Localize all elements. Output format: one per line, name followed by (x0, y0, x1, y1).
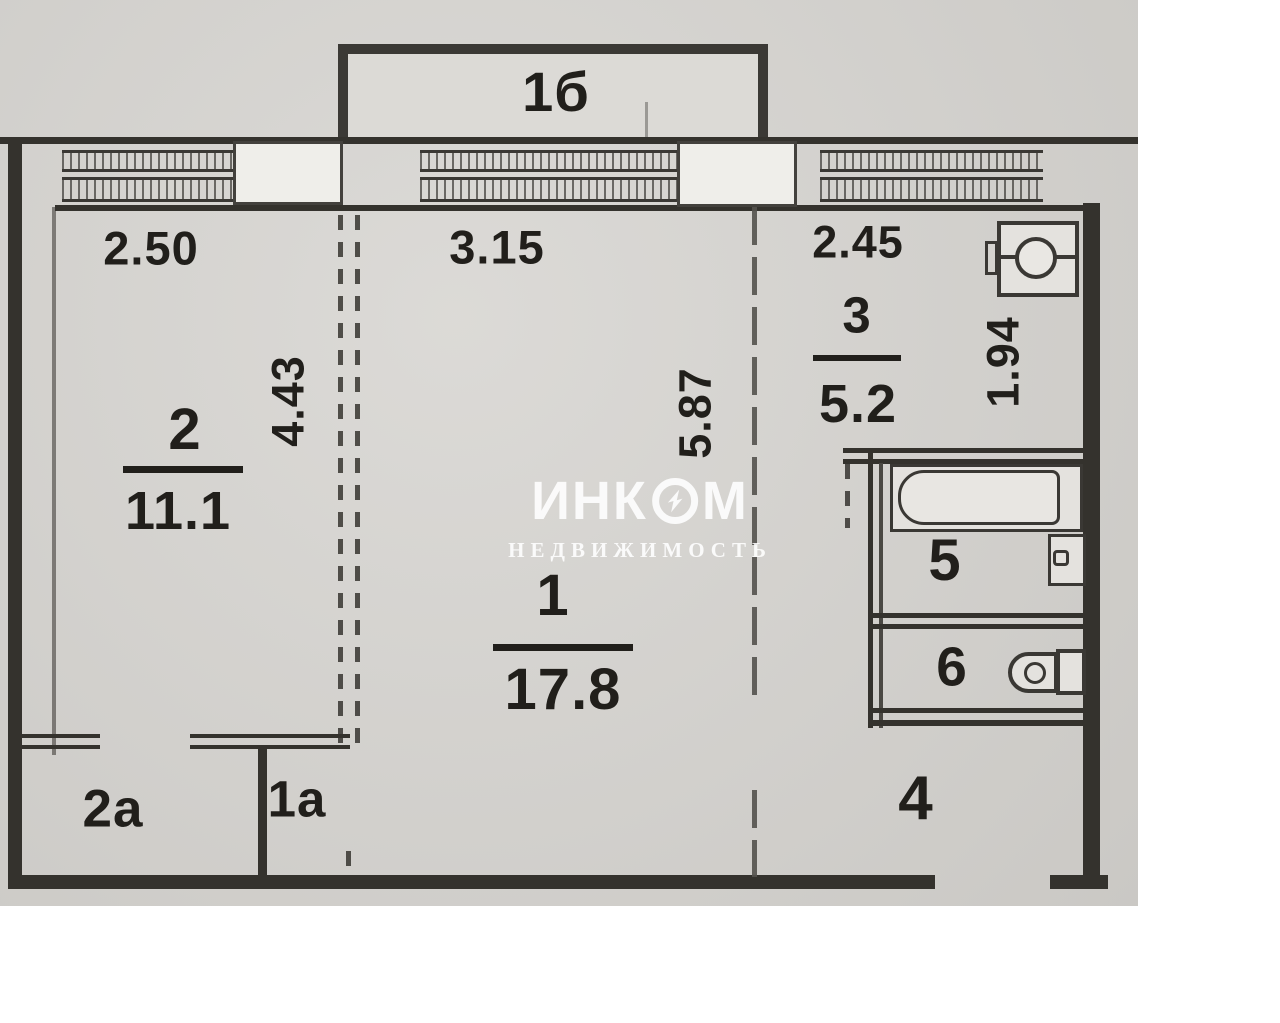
closet-wall-right-line1 (190, 734, 350, 738)
bath-wc-wall-line1 (868, 613, 1085, 618)
kitchen-door-leaf (845, 464, 850, 528)
north-wall-inner-line (55, 205, 1085, 211)
bedroom-area: 11.1 (125, 484, 231, 538)
lightning-bolt-in-circle-icon (652, 478, 698, 524)
hall-number: 4 (898, 768, 933, 830)
living-fraction-bar (493, 644, 633, 651)
closet-1a-wall-stub (346, 851, 351, 877)
watermark-brand-left: ИНК (531, 470, 648, 532)
bath-number: 5 (928, 532, 961, 590)
sink-tap-icon (985, 241, 998, 275)
kitchen-number: 3 (842, 290, 871, 341)
bedroom-window-icon (62, 148, 233, 204)
floor-plan-scan: 1б (0, 0, 1280, 1023)
wall-pier-left (233, 141, 343, 205)
bath-left-wall-line2 (879, 463, 883, 728)
balcony-glazing-divider (645, 102, 648, 138)
kitchen-window-icon (820, 148, 1043, 204)
balcony-door-window-icon (420, 148, 677, 204)
sink-bowl-icon (1015, 237, 1057, 279)
wc-bottom-wall-line1 (868, 708, 1085, 713)
bath-left-wall-line1 (868, 448, 873, 728)
kitchen-bath-wall-line1 (843, 448, 1085, 453)
watermark-subtitle: НЕДВИЖИМОСТЬ (508, 538, 772, 563)
south-wall-left-segment (8, 875, 935, 889)
bedroom-height-dim: 4.43 (266, 355, 311, 447)
bedroom-living-wall-line1 (338, 215, 343, 748)
west-wall (8, 137, 22, 889)
watermark-brand-row: ИНК М (531, 470, 749, 532)
closet-divider-wall (258, 749, 267, 877)
toilet-seat-icon (1024, 662, 1046, 684)
wc-number: 6 (936, 640, 968, 695)
toilet-tank-icon (1056, 649, 1086, 695)
wc-bottom-wall-line2 (868, 720, 1085, 726)
closet-wall-left-line1 (15, 734, 100, 738)
bedroom-number: 2 (168, 401, 201, 459)
living-hall-wall-upper (752, 207, 757, 700)
living-hall-wall-lower (752, 790, 757, 877)
living-area: 17.8 (505, 661, 622, 719)
washbasin-tap-icon (1053, 550, 1069, 566)
watermark: ИНК М НЕДВИЖИМОСТЬ (508, 470, 772, 563)
living-height-dim: 5.87 (673, 367, 718, 459)
north-wall-outer-line (0, 137, 1138, 144)
west-wall-inner-line (52, 207, 56, 755)
kitchen-width-dim: 2.45 (812, 220, 904, 265)
closet-1a-label: 1а (268, 774, 327, 825)
bedroom-fraction-bar (123, 466, 243, 473)
kitchen-fraction-bar (813, 355, 901, 361)
closet-2a-label: 2а (83, 783, 144, 836)
south-wall-right-segment (1050, 875, 1108, 889)
bathtub-inner-icon (898, 470, 1060, 525)
bedroom-width-dim: 2.50 (103, 225, 198, 272)
bedroom-living-wall-line2 (355, 215, 360, 748)
wall-pier-center (677, 141, 797, 207)
bath-wc-wall-line2 (868, 624, 1085, 629)
balcony-label: 1б (522, 64, 590, 120)
kitchen-area: 5.2 (819, 377, 897, 431)
kitchen-height-dim: 1.94 (981, 316, 1026, 408)
living-width-dim: 3.15 (449, 224, 544, 271)
watermark-brand-right: М (702, 470, 749, 532)
closet-wall-right-line2 (190, 745, 350, 749)
living-number: 1 (536, 567, 569, 625)
closet-wall-left-line2 (15, 745, 100, 749)
